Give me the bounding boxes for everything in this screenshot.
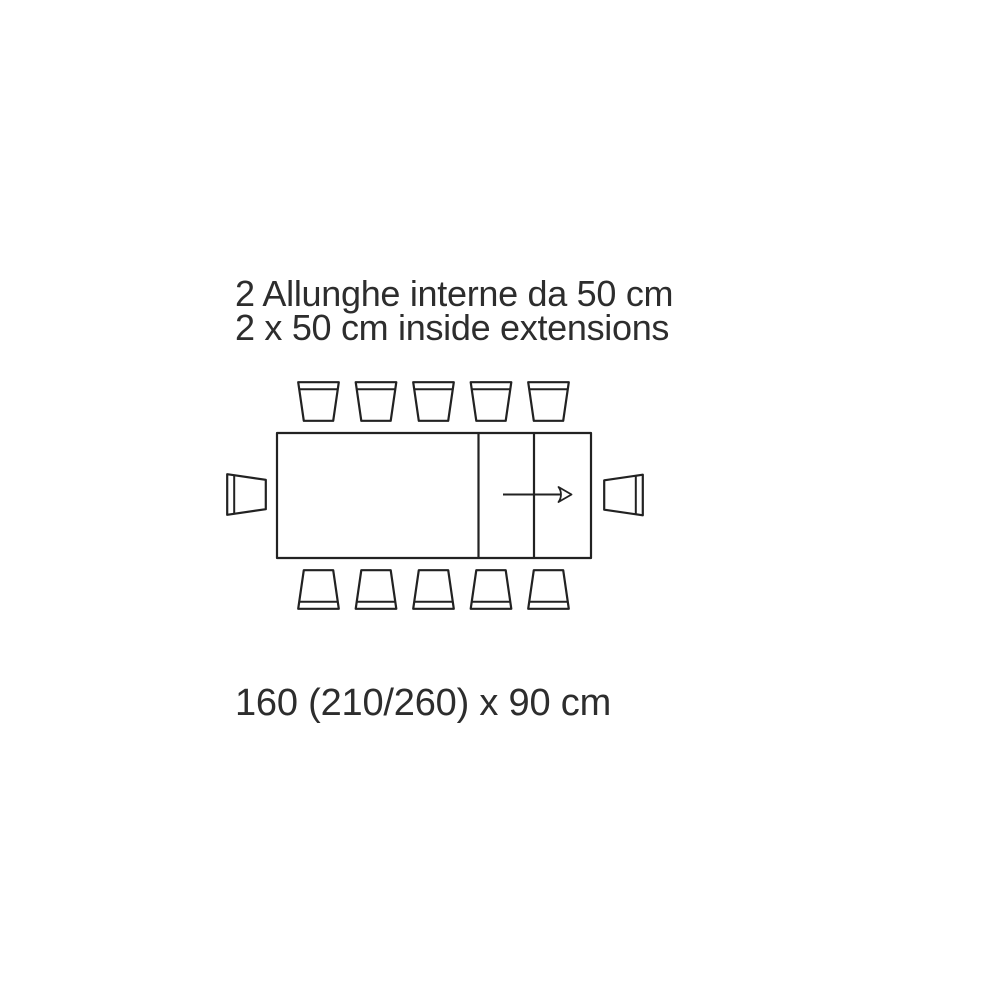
- chair-bottom-1: [298, 570, 339, 609]
- chair-bottom-2: [356, 570, 397, 609]
- table-plan-diagram: [0, 0, 1000, 1000]
- chair-bottom-5: [528, 570, 569, 609]
- diagram-canvas: 2 Allunghe interne da 50 cm 2 x 50 cm in…: [0, 0, 1000, 1000]
- chair-left: [227, 474, 266, 515]
- chair-top-1: [298, 382, 339, 421]
- chair-top-5: [528, 382, 569, 421]
- chair-top-3: [413, 382, 454, 421]
- chair-bottom-3: [413, 570, 454, 609]
- chair-top-2: [356, 382, 397, 421]
- chair-right: [604, 475, 643, 516]
- dimension-label: 160 (210/260) x 90 cm: [235, 684, 611, 722]
- chair-top-4: [471, 382, 512, 421]
- chair-bottom-4: [471, 570, 512, 609]
